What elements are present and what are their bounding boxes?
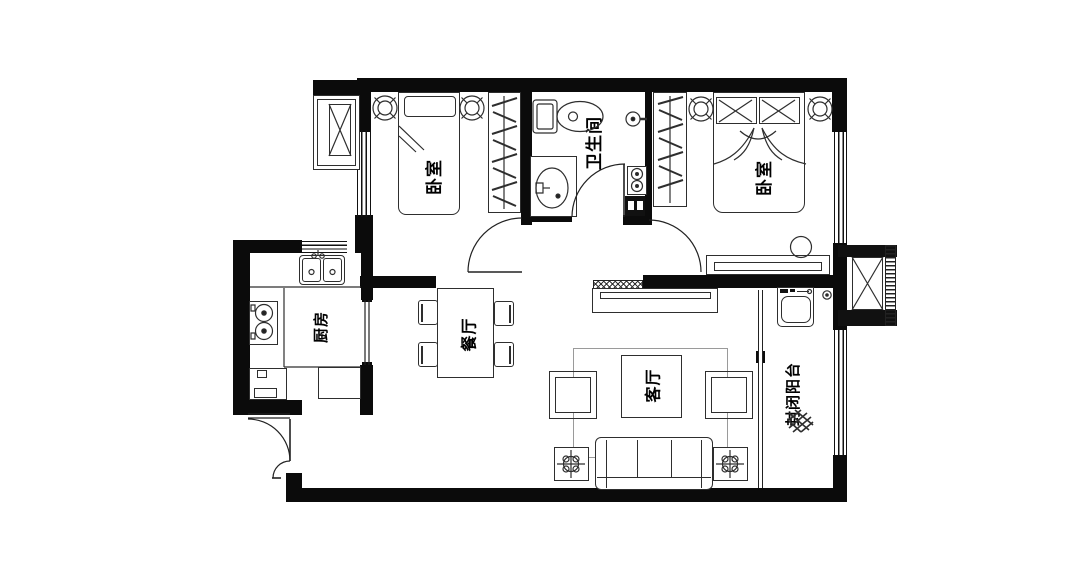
sofa-seat-divider bbox=[637, 440, 638, 477]
kitchen-slider-nub-top bbox=[362, 295, 372, 302]
chair-back bbox=[421, 304, 423, 322]
armchair-right bbox=[705, 371, 753, 419]
kitchen-slider-nub-bottom bbox=[362, 362, 372, 369]
side-table-left bbox=[554, 447, 589, 481]
armchair-cushion bbox=[711, 377, 747, 413]
wall-kitchen-north bbox=[233, 240, 302, 253]
washer-panel-line bbox=[797, 291, 809, 292]
sofa-seat-divider bbox=[671, 440, 672, 477]
wall-bedroom-left-south bbox=[360, 276, 436, 288]
room-label-dining: 餐厅 bbox=[459, 315, 476, 355]
wardrobe-bedroom-right bbox=[653, 92, 687, 207]
entry-door bbox=[248, 414, 290, 478]
kitchen-sink-basin-right bbox=[323, 258, 342, 282]
kitchen-sink-basin-left bbox=[302, 258, 321, 282]
window-kitchen-north bbox=[302, 241, 347, 253]
chair-back bbox=[421, 346, 423, 364]
kitchen-cabinet-drawer bbox=[254, 388, 277, 398]
wall-kitchen-south bbox=[233, 400, 302, 415]
wardrobe-bedroom-left bbox=[488, 92, 521, 213]
chair-back bbox=[509, 305, 511, 323]
room-label-living: 客厅 bbox=[643, 366, 660, 406]
dining-chair bbox=[494, 342, 514, 367]
fridge bbox=[318, 367, 361, 399]
bathroom-vanity bbox=[530, 156, 577, 217]
water-heater bbox=[627, 166, 647, 195]
floor-plan: 卧室 卫生间 卧室 厨房 餐厅 客厅 bbox=[0, 0, 1074, 576]
wall-kitchen-west bbox=[233, 253, 250, 400]
sofa-armrest-line bbox=[701, 440, 702, 488]
bedroom-left-door bbox=[468, 218, 522, 272]
kitchen-sliding-door bbox=[365, 300, 369, 365]
room-label-bedroom-left: 卧室 bbox=[423, 157, 441, 197]
sofa bbox=[595, 437, 713, 490]
washer-control bbox=[780, 289, 788, 293]
desk-drawer bbox=[714, 262, 822, 271]
window-bedroom-right-east bbox=[834, 132, 847, 243]
room-label-bathroom: 卫生间 bbox=[583, 113, 601, 173]
stove bbox=[249, 301, 278, 345]
dining-chair bbox=[418, 300, 438, 325]
bed-double-pillow-right bbox=[759, 97, 800, 124]
dining-chair bbox=[494, 301, 514, 326]
flue-box-northwest bbox=[329, 104, 351, 156]
armchair-cushion bbox=[555, 377, 591, 413]
wall-east-upper bbox=[832, 78, 847, 132]
balcony-partition bbox=[758, 290, 763, 488]
tv bbox=[600, 292, 711, 299]
room-label-balcony: 封闭阳台 bbox=[784, 358, 800, 430]
wall-bedroom-left-west-lower bbox=[355, 215, 373, 253]
bed-single-pillow bbox=[404, 96, 456, 117]
dining-chair bbox=[418, 342, 438, 367]
wall-bathroom-east bbox=[645, 92, 652, 220]
flue-box-east bbox=[852, 257, 883, 310]
room-label-kitchen: 厨房 bbox=[312, 307, 328, 347]
shower-icon bbox=[626, 112, 647, 126]
chair-back bbox=[509, 346, 511, 364]
armchair-left bbox=[549, 371, 597, 419]
kitchen-cabinet-handle bbox=[257, 370, 267, 378]
bedroom-right-door bbox=[649, 220, 701, 272]
wall-bottom bbox=[286, 488, 847, 502]
washer-door bbox=[781, 296, 811, 323]
bathroom-cabinet-slot bbox=[637, 201, 643, 210]
wall-kitchen-east-lower bbox=[360, 365, 373, 415]
side-table-right bbox=[713, 447, 748, 481]
sofa-back-line bbox=[597, 477, 711, 478]
window-balcony-east bbox=[834, 330, 847, 455]
room-label-bedroom-right: 卧室 bbox=[753, 158, 771, 198]
wall-top bbox=[357, 78, 845, 92]
bed-double-pillow-left bbox=[716, 97, 757, 124]
washer-control bbox=[790, 289, 795, 292]
sofa-armrest-line bbox=[606, 440, 607, 488]
ac-niche-screen bbox=[885, 245, 896, 326]
bathroom-cabinet-slot bbox=[628, 201, 634, 210]
wall-top-left-jut bbox=[313, 80, 361, 95]
